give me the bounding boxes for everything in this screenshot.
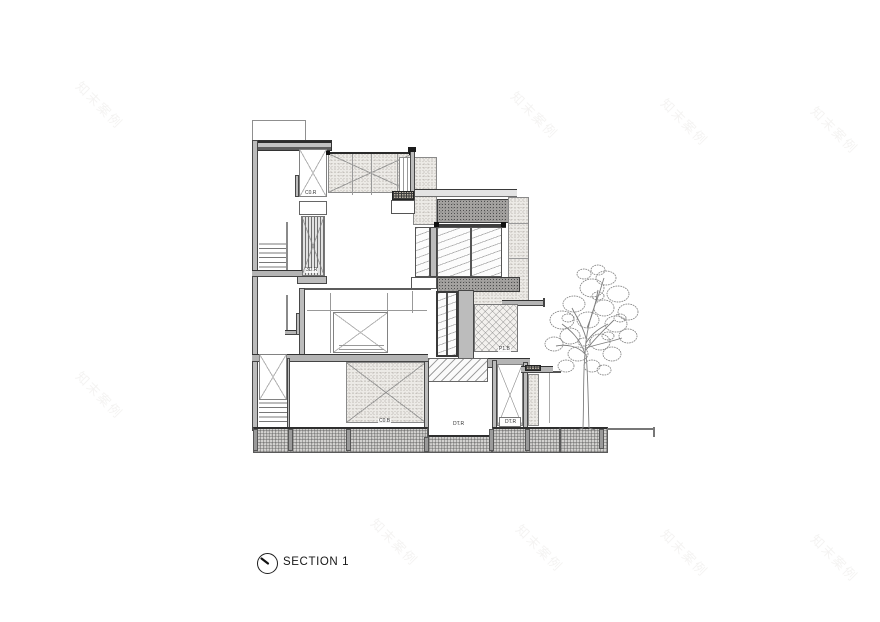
watermark: 知末案例 — [72, 367, 128, 423]
room-label: DT.R — [504, 420, 517, 425]
ground-hatch — [253, 427, 428, 453]
room-label: P1.B — [498, 347, 511, 352]
parapet-joint-line — [397, 154, 398, 195]
stair-flight-upper — [259, 243, 287, 272]
parapet-joint-line — [371, 154, 372, 195]
interior-wall — [287, 358, 290, 428]
roof-penthouse-outline — [252, 120, 306, 141]
foundation-pier — [288, 429, 293, 451]
roof-plane — [415, 189, 517, 197]
basement-x-marks — [347, 363, 425, 422]
room-label: 3D.R — [305, 268, 318, 273]
foundation-pier — [599, 429, 604, 449]
foundation-pier — [424, 437, 429, 452]
gutter-box — [391, 200, 415, 214]
door-mullion — [446, 293, 448, 355]
canopy-insulation-box — [525, 365, 541, 371]
joint-line — [509, 223, 528, 224]
left-exterior-wall — [252, 140, 258, 431]
foundation-pier — [253, 429, 258, 451]
room-label: C0.R — [304, 191, 317, 196]
architectural-section-sheet: 知末案例 知末案例 知末案例 知末案例 知末案例 知末案例 知末案例 知末案例 … — [0, 0, 880, 622]
panel-line — [307, 310, 427, 311]
foundation-pier — [489, 429, 494, 451]
foundation-pier — [346, 429, 351, 451]
frame-cap — [326, 151, 330, 155]
shelf-line — [339, 345, 384, 346]
stair-rail-wall — [286, 222, 288, 272]
watermark: 知末案例 — [367, 514, 423, 570]
watermark: 知末案例 — [807, 102, 863, 158]
ceiling-line — [305, 288, 431, 290]
core-beam-box — [299, 201, 327, 215]
ground-hatch-sunken — [428, 435, 492, 453]
spandrel-band — [437, 277, 520, 292]
shelf-line — [339, 349, 384, 350]
watermark: 知末案例 — [657, 94, 713, 150]
section-marker-hand — [258, 554, 275, 571]
gutter-insulation-box — [392, 191, 414, 200]
watermark: 知末案例 — [72, 77, 128, 133]
panel-line — [330, 293, 331, 353]
watermark: 知末案例 — [657, 525, 713, 581]
section-title: SECTION 1 — [283, 556, 349, 568]
roof-fascia-band — [437, 199, 512, 223]
stair-rail-wall — [286, 295, 288, 333]
mullion-line — [403, 158, 404, 192]
watermark: 知末案例 — [507, 87, 563, 143]
core-foot-slab — [297, 276, 327, 284]
post-cap — [408, 147, 416, 152]
window-jamb — [430, 227, 437, 277]
grade-tick — [653, 427, 655, 437]
floor-slab-left — [252, 270, 302, 277]
window-pane-main — [437, 227, 502, 277]
pit-wall — [424, 361, 429, 437]
joint-line — [509, 258, 528, 259]
stair-flight-lower — [259, 400, 287, 422]
room-label: C0.B — [378, 419, 391, 424]
door-jamb-wall — [458, 290, 474, 360]
interior-wall — [299, 288, 305, 357]
foundation-pier — [525, 429, 530, 451]
left-cut-wall-panel — [259, 354, 287, 400]
window-mullion — [470, 228, 472, 276]
stipple-pier — [528, 374, 539, 426]
screen-panel — [474, 304, 518, 352]
mullion-line — [407, 158, 408, 192]
cabinet-elevation — [333, 312, 388, 353]
watermark: 知末案例 — [807, 530, 863, 586]
window-pane-narrow — [415, 227, 430, 277]
tree-illustration — [540, 258, 645, 430]
basement-cut-panel — [346, 362, 426, 423]
parapet-joint-line — [352, 154, 353, 195]
glazed-door — [436, 291, 458, 357]
watermark: 知末案例 — [512, 520, 568, 576]
panel-line — [412, 291, 413, 313]
section-marker-icon — [257, 553, 278, 574]
cut-fill-hatch — [428, 358, 488, 382]
room-label: DT.R — [452, 422, 465, 427]
